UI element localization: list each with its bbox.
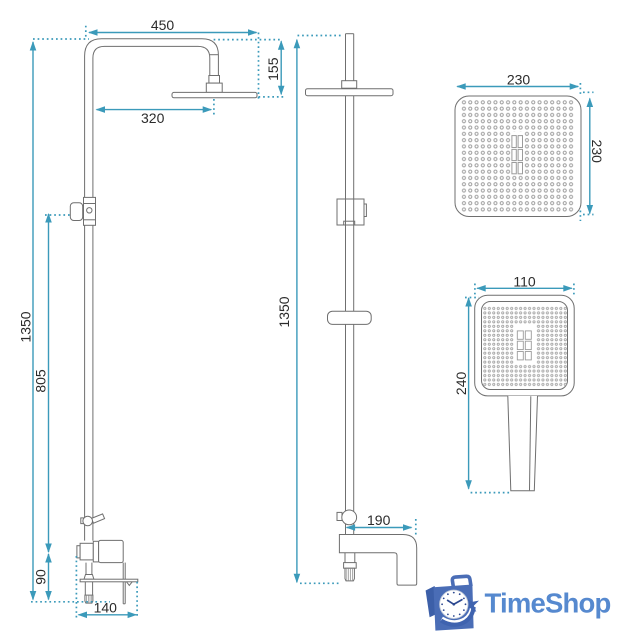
svg-text:240: 240 [453, 372, 469, 396]
svg-text:110: 110 [513, 274, 536, 290]
svg-text:190: 190 [367, 512, 391, 528]
svg-text:805: 805 [32, 369, 48, 393]
svg-text:230: 230 [507, 72, 531, 88]
svg-text:450: 450 [151, 17, 175, 33]
svg-text:320: 320 [141, 110, 165, 126]
svg-text:155: 155 [265, 57, 281, 81]
svg-text:1350: 1350 [276, 296, 292, 327]
svg-text:TimeShop: TimeShop [485, 588, 611, 619]
svg-text:90: 90 [32, 569, 48, 585]
svg-text:230: 230 [589, 140, 605, 164]
svg-text:1350: 1350 [17, 311, 33, 342]
